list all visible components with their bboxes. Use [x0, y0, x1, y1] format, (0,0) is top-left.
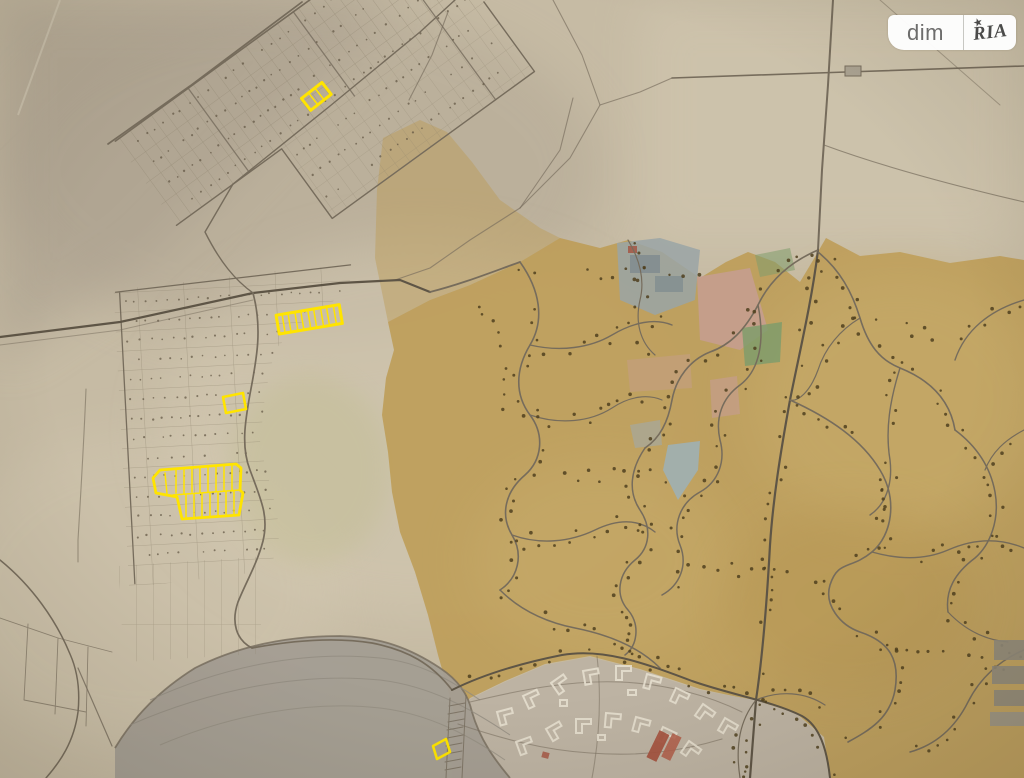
ria-logo-text: RIA [972, 21, 1008, 44]
dimria-watermark: dim ★ RIA [888, 15, 1016, 50]
dim-logo: dim [888, 15, 963, 50]
cadastral-map [0, 0, 1024, 778]
photo-vignette [0, 0, 1024, 778]
ria-logo: ★ RIA [964, 15, 1016, 50]
listing-photo: dim ★ RIA [0, 0, 1024, 778]
